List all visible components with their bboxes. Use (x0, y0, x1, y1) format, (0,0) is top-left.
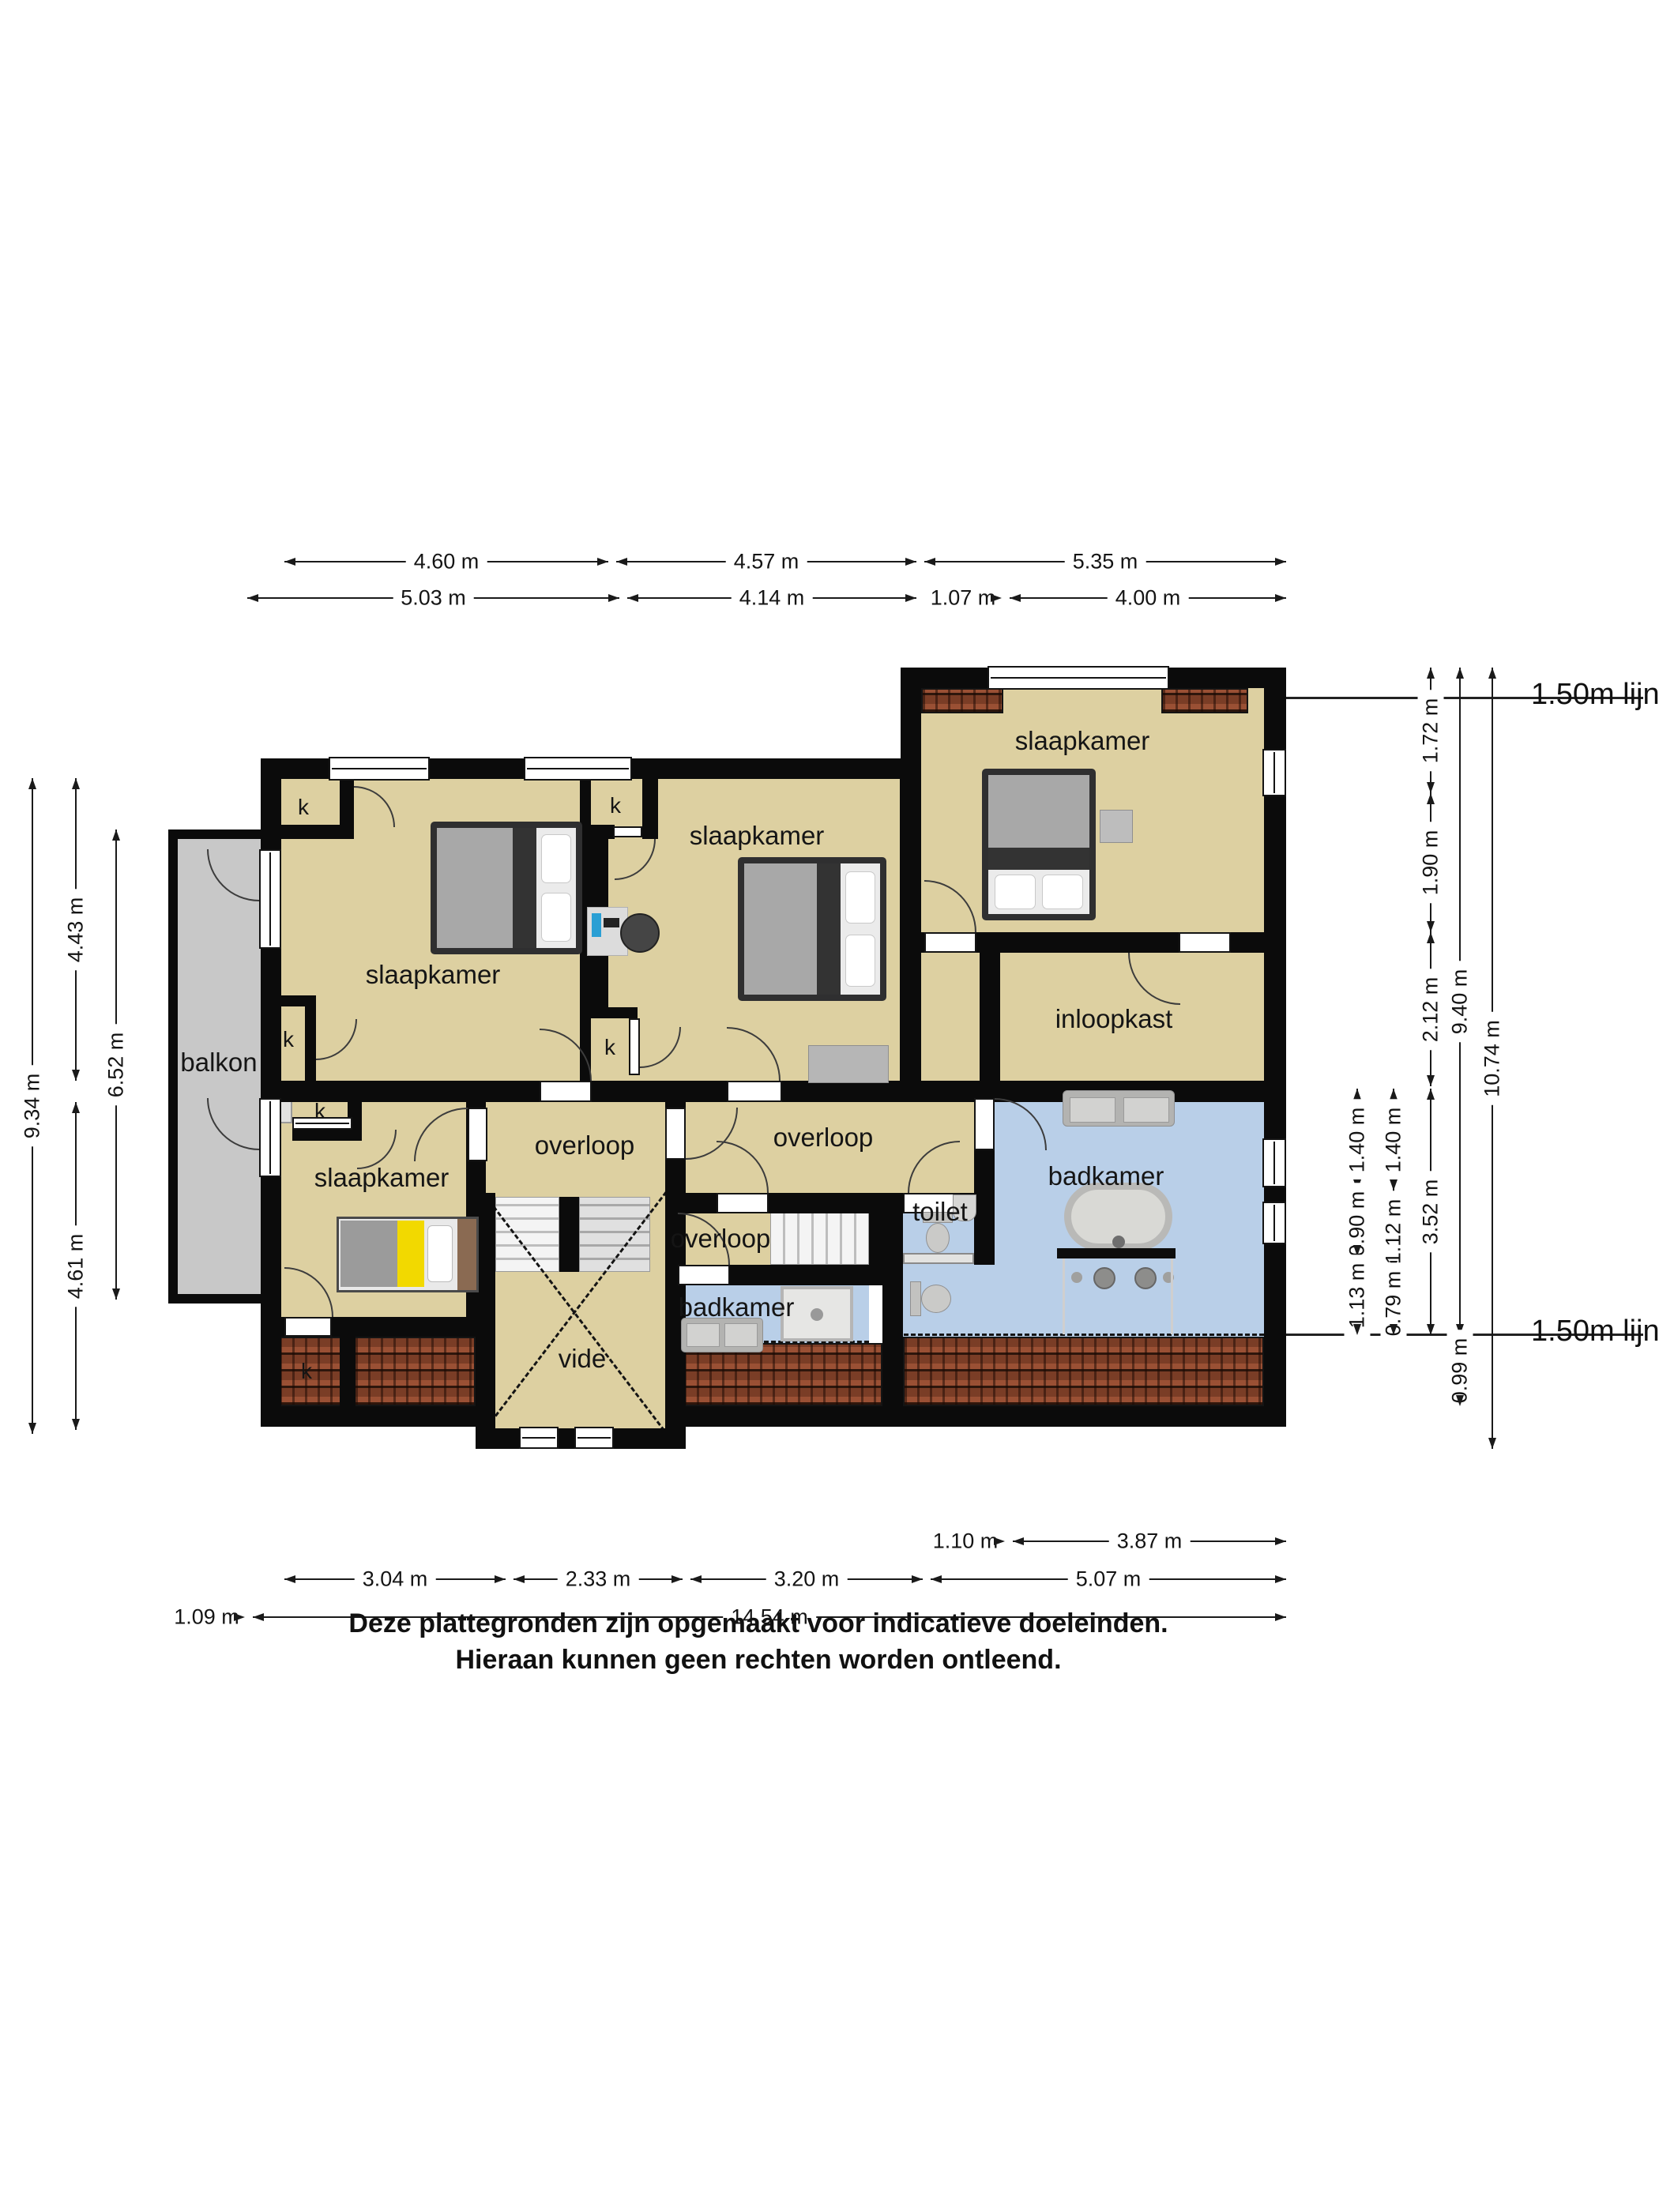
height-line-label: 1.50m lijn (1531, 678, 1659, 712)
bed (982, 769, 1096, 920)
dimension-right: 0.99 m (1459, 1335, 1461, 1406)
wall (1264, 668, 1286, 1102)
dimension-label: 5.03 m (393, 585, 474, 611)
dimension-top: 4.00 m (1010, 597, 1286, 599)
closet-wall (340, 779, 354, 839)
door-frame (924, 932, 976, 953)
dimension-right: 1.13 m (1356, 1256, 1358, 1335)
laptop (592, 913, 601, 937)
roof-hatch (1161, 688, 1248, 713)
room-label-toilet: toilet (912, 1197, 968, 1227)
toilet-tank (910, 1281, 921, 1316)
dimension-label: 0.90 m (1345, 1183, 1371, 1264)
shower-knob (1071, 1272, 1082, 1283)
closet-label: k (283, 1027, 294, 1052)
dimension-label: 2.33 m (558, 1567, 639, 1593)
height-line-dashed (882, 1334, 1264, 1336)
dimension-left: 9.34 m (32, 778, 33, 1434)
dimension-label: 1.72 m (1418, 690, 1444, 771)
balcony-wall (168, 829, 261, 839)
dimension-right: 2.12 m (1430, 932, 1431, 1086)
wall (730, 1265, 869, 1285)
wall (340, 1337, 355, 1406)
dimension-label: 1.07 m (923, 585, 1004, 611)
dimension-right: 1.72 m (1430, 668, 1431, 793)
room-label-bedroom-top-right: slaapkamer (1015, 726, 1150, 756)
wall (901, 668, 921, 779)
dimension-label: 1.12 m (1381, 1191, 1407, 1272)
room-label-bedroom-bottom-left: slaapkamer (314, 1163, 450, 1193)
dimension-label: 4.00 m (1108, 585, 1189, 611)
door-frame (468, 1108, 487, 1161)
dimension-bottom: 3.87 m (1013, 1540, 1286, 1542)
wall (900, 779, 921, 1081)
dimension-label: 4.43 m (63, 889, 89, 970)
dimension-label: 4.57 m (726, 549, 807, 575)
dimension-label: 4.61 m (63, 1225, 89, 1307)
dimension-label: 1.40 m (1381, 1099, 1407, 1180)
monitor (604, 918, 619, 927)
dimension-bottom: 1.10 m (926, 1540, 1005, 1542)
dimension-label: 3.87 m (1109, 1529, 1191, 1555)
door-frame (540, 1081, 592, 1102)
dimension-label: 10.74 m (1480, 1012, 1506, 1105)
dimension-right: 1.12 m (1393, 1191, 1394, 1272)
dimension-left: 4.61 m (75, 1102, 77, 1430)
double-sink (681, 1318, 763, 1352)
dimension-label: 4.14 m (732, 585, 813, 611)
dimension-label: 5.07 m (1068, 1567, 1149, 1593)
wall (683, 1406, 1286, 1427)
room-label-bedroom-middle: slaapkamer (690, 821, 825, 851)
dimension-right: 3.52 m (1430, 1089, 1431, 1335)
room-label-void: vide (559, 1344, 607, 1374)
door-frame (1179, 932, 1231, 953)
dimension-right: 0.90 m (1356, 1191, 1358, 1256)
door-frame (613, 826, 642, 837)
dimension-top: 4.14 m (627, 597, 916, 599)
shower-glass (1063, 1258, 1065, 1334)
bathtub (1064, 1183, 1172, 1251)
room-label-walk-in-closet: inloopkast (1055, 1004, 1173, 1034)
disclaimer-line-1: Deze plattegronden zijn opgemaakt voor i… (126, 1608, 1390, 1639)
window (519, 1427, 559, 1449)
dimension-top: 1.07 m (924, 597, 1002, 599)
dimension-left: 6.52 m (115, 829, 117, 1300)
balcony-wall (168, 829, 178, 1303)
dimension-label: 9.40 m (1447, 961, 1473, 1042)
double-sink (1063, 1090, 1175, 1127)
floor-plan-canvas: slaapkamer slaapkamer slaapkamer slaapka… (0, 0, 1659, 2212)
wall (882, 1265, 903, 1427)
dimension-label: 9.34 m (20, 1066, 46, 1147)
bed (738, 857, 886, 1001)
dimension-bottom: 5.07 m (931, 1578, 1286, 1580)
closet-wall (305, 1005, 316, 1081)
nightstand (1100, 810, 1133, 843)
dimension-label: 0.79 m (1381, 1263, 1407, 1345)
dimension-label: 6.52 m (103, 1024, 130, 1105)
door-frame (727, 1081, 782, 1102)
dimension-right: 1.40 m (1393, 1089, 1394, 1191)
shower-head (1093, 1267, 1115, 1289)
window (1262, 1138, 1286, 1187)
closet-label: k (604, 1035, 615, 1060)
room-label-bedroom-top-left: slaapkamer (366, 960, 501, 990)
dimension-right: 9.40 m (1459, 668, 1461, 1335)
toilet-bowl (926, 1223, 950, 1253)
dimension-right: 1.40 m (1356, 1089, 1358, 1191)
dimension-label: 1.13 m (1345, 1255, 1371, 1337)
closet-wall (589, 825, 615, 839)
dimension-top: 4.60 m (284, 561, 608, 562)
room-label-bathroom-small: badkamer (679, 1292, 795, 1322)
balcony-wall (168, 1294, 261, 1303)
dimension-label: 3.20 m (766, 1567, 848, 1593)
window (524, 757, 632, 781)
dresser (808, 1045, 889, 1083)
roof-hatch (903, 1337, 1264, 1406)
dimension-right: 0.79 m (1393, 1272, 1394, 1335)
dimension-bottom: 2.33 m (513, 1578, 683, 1580)
low-wall (903, 1253, 974, 1264)
window (1262, 749, 1286, 796)
dimension-label: 1.90 m (1418, 822, 1444, 904)
balcony-door (259, 1098, 281, 1177)
office-chair (620, 913, 660, 953)
shower-glass (1171, 1258, 1173, 1334)
window (987, 666, 1169, 690)
bed (337, 1217, 479, 1292)
door-frame (717, 1193, 769, 1213)
wall (980, 932, 1000, 1081)
wall (665, 1265, 678, 1285)
room-label-balcony: balkon (180, 1048, 257, 1078)
wall (882, 1193, 903, 1265)
door-frame (678, 1265, 730, 1285)
closet-label: k (610, 793, 621, 818)
dimension-label: 4.60 m (406, 549, 487, 575)
door-frame (665, 1108, 686, 1160)
balcony-door (259, 849, 281, 949)
dimension-label: 3.04 m (355, 1567, 436, 1593)
room-label-bathroom-main: badkamer (1048, 1161, 1164, 1191)
room-label-landing-left: overloop (535, 1130, 635, 1161)
dimension-top: 5.35 m (924, 561, 1286, 562)
dimension-label: 5.35 m (1065, 549, 1146, 575)
toilet-bowl (921, 1285, 951, 1313)
dimension-top: 4.57 m (616, 561, 916, 562)
dimension-label: 1.40 m (1345, 1099, 1371, 1180)
closet-label: k (314, 1099, 325, 1124)
window (574, 1427, 614, 1449)
dimension-bottom: 3.04 m (284, 1578, 506, 1580)
wall (559, 1197, 579, 1272)
closet-label: k (301, 1359, 312, 1384)
wall (686, 1193, 717, 1213)
bed (431, 822, 582, 954)
roof-hatch (921, 688, 1003, 713)
room-label-landing-center: overloop (773, 1123, 874, 1153)
door-frame (284, 1317, 332, 1337)
window (1262, 1202, 1286, 1244)
wall (261, 1406, 476, 1427)
dimension-left: 4.43 m (75, 778, 77, 1081)
dimension-label: 2.12 m (1418, 969, 1444, 1050)
room-label-landing-small: overloop (671, 1224, 771, 1254)
dimension-label: 3.52 m (1418, 1172, 1444, 1253)
dimension-right: 1.90 m (1430, 793, 1431, 932)
shower-head (1134, 1267, 1157, 1289)
window (329, 757, 430, 781)
door-frame (629, 1018, 640, 1075)
shower-bar (1057, 1248, 1176, 1258)
dimension-top: 5.03 m (247, 597, 619, 599)
disclaimer-line-2: Hieraan kunnen geen rechten worden ontle… (126, 1645, 1390, 1676)
closet-wall (642, 779, 658, 839)
dimension-right: 10.74 m (1492, 668, 1493, 1449)
dimension-label: 0.99 m (1447, 1330, 1473, 1412)
height-line-label: 1.50m lijn (1531, 1315, 1659, 1349)
dimension-label: 1.10 m (925, 1529, 1006, 1555)
door-frame (974, 1098, 995, 1150)
stairs (495, 1197, 559, 1272)
roof-hatch (683, 1343, 882, 1406)
closet-label: k (298, 795, 309, 820)
dimension-bottom: 3.20 m (690, 1578, 923, 1580)
